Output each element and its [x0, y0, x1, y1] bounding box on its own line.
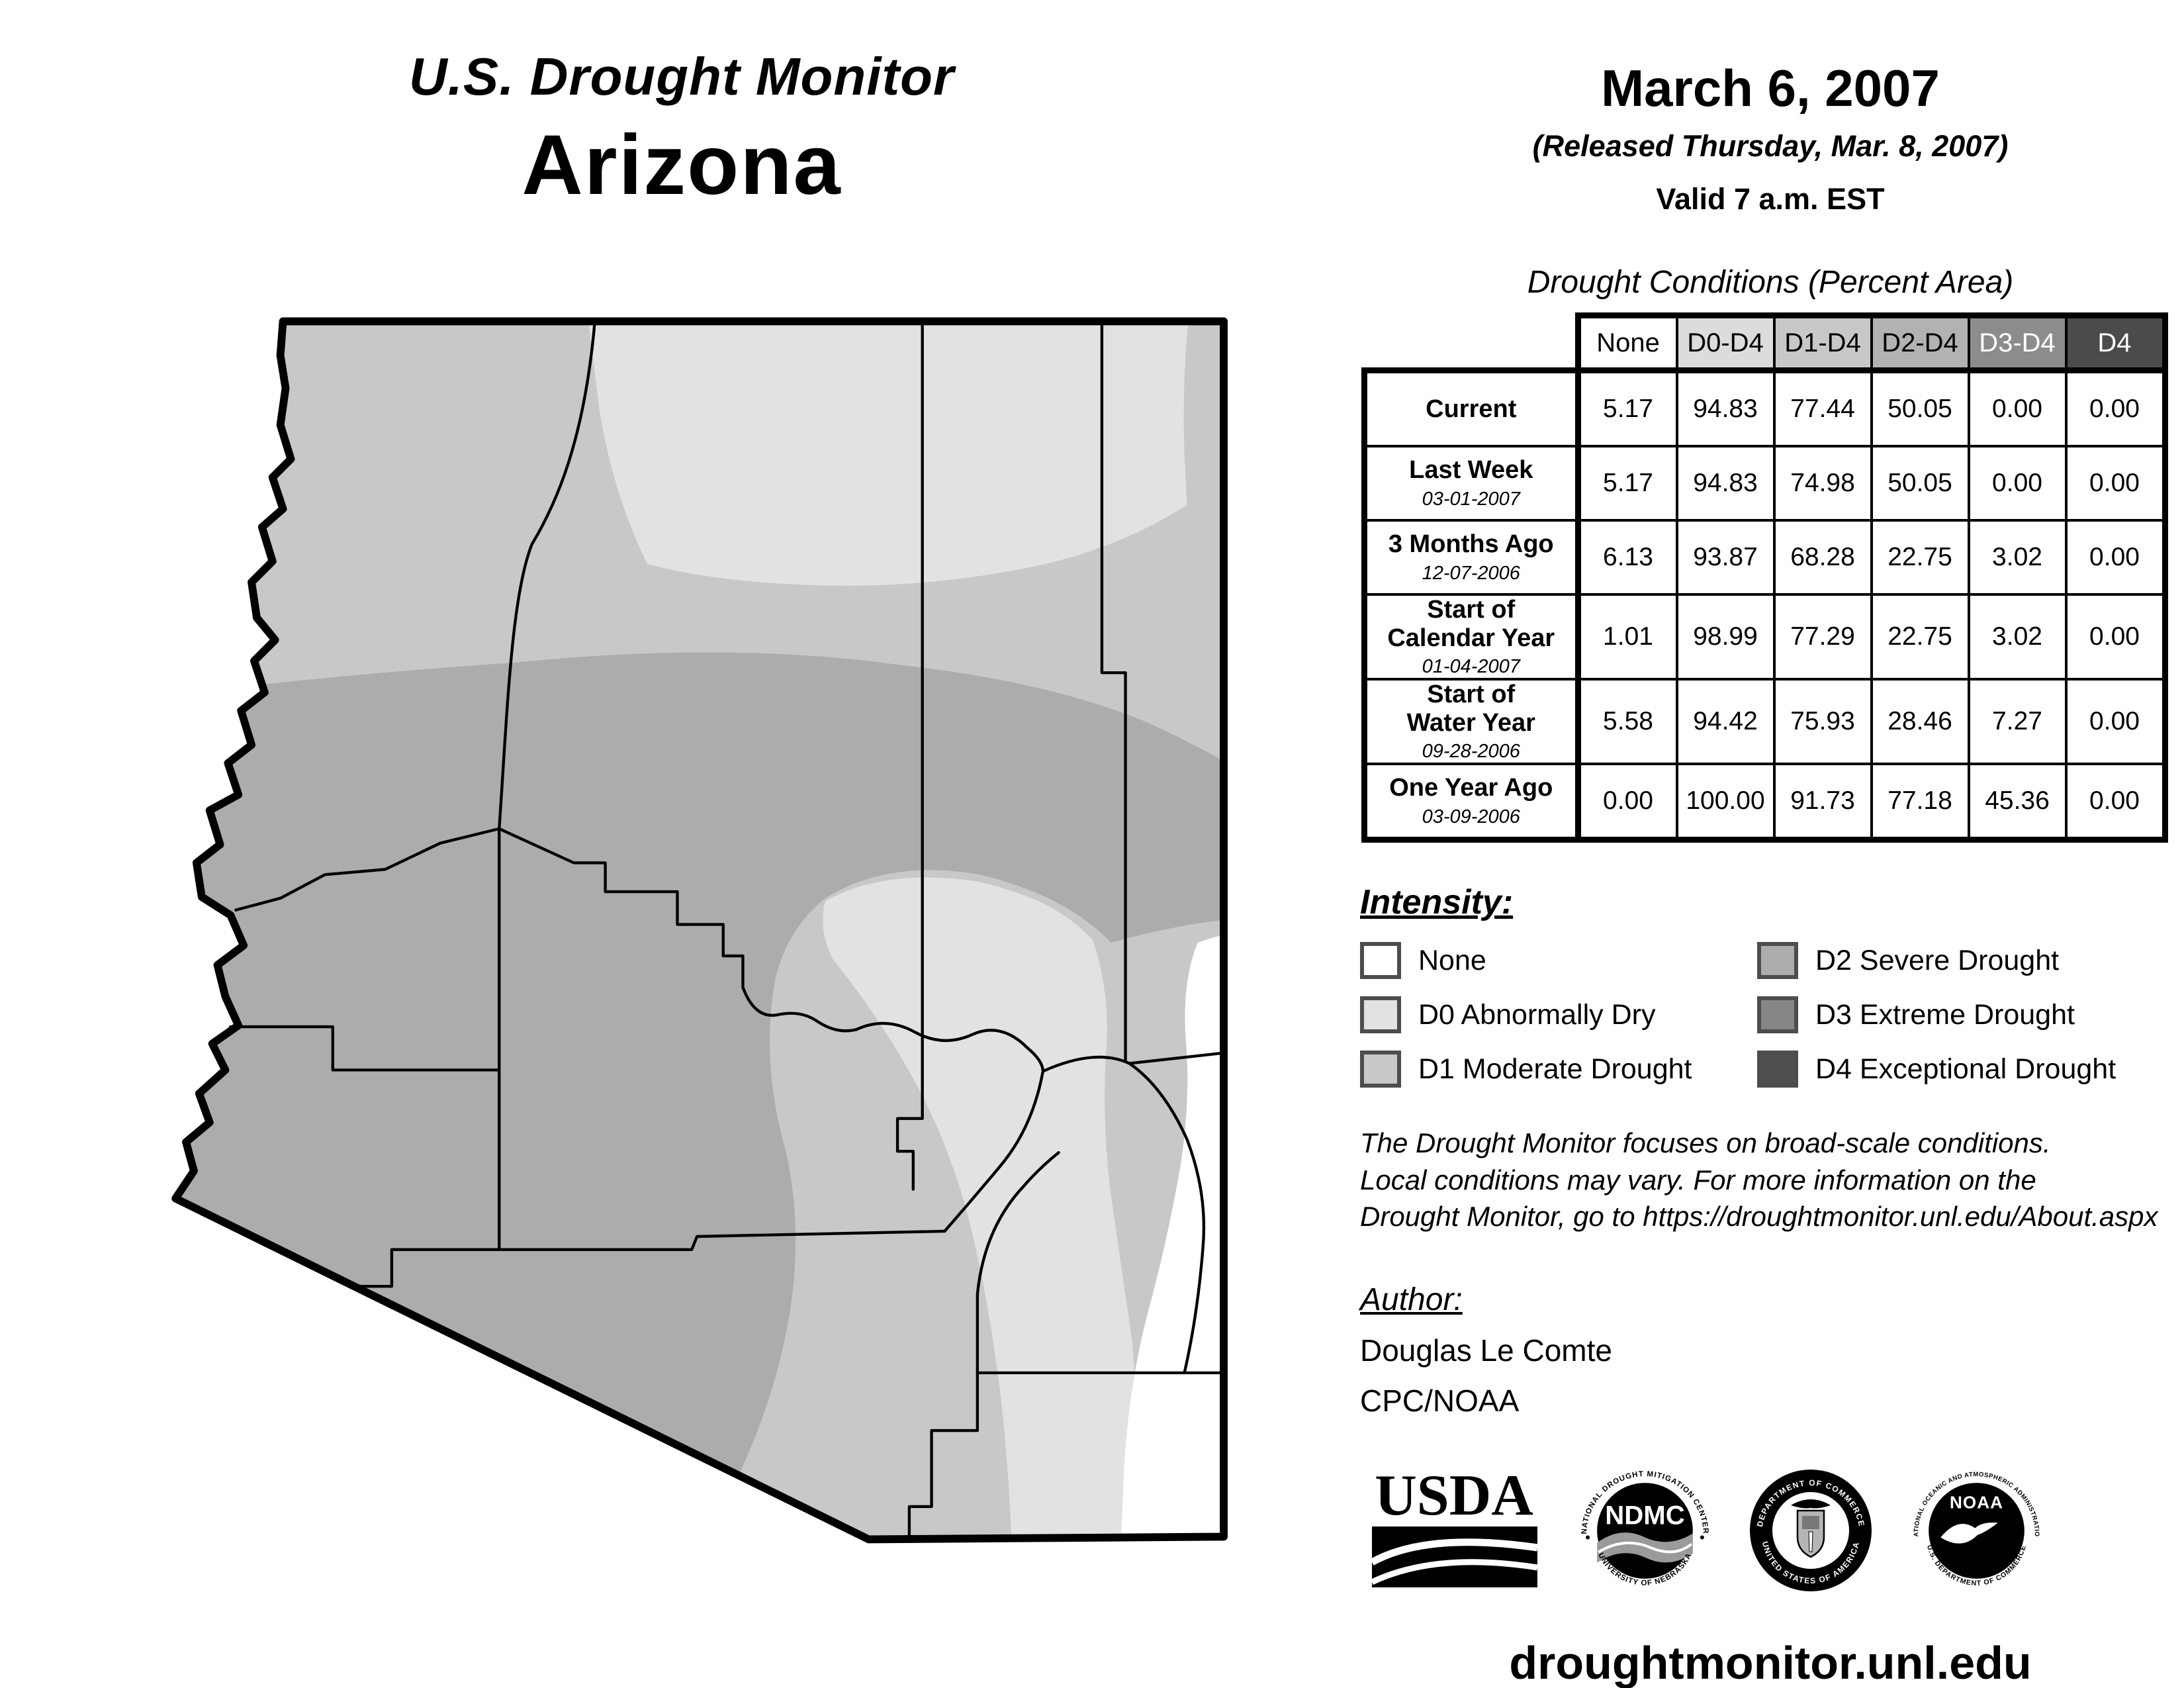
cell-value: 7.27 [1969, 679, 2066, 764]
drought-conditions-table: None D0-D4 D1-D4 D2-D4 D3-D4 D4 Current … [1361, 312, 2168, 843]
row-label: 3 Months Ago 12-07-2006 [1365, 520, 1578, 594]
cell-value: 94.83 [1677, 446, 1774, 520]
col-header-d4: D4 [2066, 316, 2165, 371]
author-name: Douglas Le Comte [1360, 1333, 2181, 1368]
legend-swatch-d3 [1757, 996, 1798, 1033]
disclaimer-line: Local conditions may vary. For more info… [1360, 1162, 2181, 1198]
table-row: Start ofWater Year 09-28-2006 5.58 94.42… [1365, 679, 2165, 764]
cell-value: 98.99 [1677, 594, 1774, 679]
cell-value: 0.00 [2066, 371, 2165, 447]
svg-text:NDMC: NDMC [1605, 1500, 1685, 1530]
cell-value: 5.58 [1578, 679, 1677, 764]
cell-value: 77.18 [1872, 764, 1969, 840]
cell-value: 50.05 [1872, 371, 1969, 447]
cell-value: 0.00 [1969, 446, 2066, 520]
cell-value: 28.46 [1872, 679, 1969, 764]
disclaimer-line: The Drought Monitor focuses on broad-sca… [1360, 1125, 2181, 1161]
cell-value: 3.02 [1969, 594, 2066, 679]
legend-item-d1: D1 Moderate Drought [1360, 1051, 1757, 1088]
website-url: droughtmonitor.unl.edu [1360, 1636, 2181, 1688]
intensity-legend: None D2 Severe Drought D0 Abnormally Dry… [1360, 942, 2181, 1088]
table-row: Current 5.17 94.83 77.44 50.05 0.00 0.00 [1365, 371, 2165, 447]
intensity-heading: Intensity: [1360, 882, 2181, 922]
legend-swatch-d1 [1360, 1051, 1401, 1088]
cell-value: 94.42 [1677, 679, 1774, 764]
cell-value: 22.75 [1872, 594, 1969, 679]
cell-value: 68.28 [1774, 520, 1872, 594]
disclaimer-line: Drought Monitor, go to https://droughtmo… [1360, 1198, 2181, 1235]
legend-item-d3: D3 Extreme Drought [1757, 996, 2181, 1033]
arizona-map-svg [126, 285, 1292, 1635]
commerce-seal: DEPARTMENT OF COMMERCE UNITED STATES OF … [1741, 1461, 1880, 1600]
table-header-row: None D0-D4 D1-D4 D2-D4 D3-D4 D4 [1365, 316, 2165, 371]
page-title: U.S. Drought Monitor [251, 46, 1112, 107]
svg-text:USDA: USDA [1375, 1464, 1533, 1528]
cell-value: 5.17 [1578, 371, 1677, 447]
legend-swatch-d2 [1757, 942, 1798, 979]
legend-item-d2: D2 Severe Drought [1757, 942, 2181, 979]
cell-value: 0.00 [2066, 446, 2165, 520]
col-header-d2d4: D2-D4 [1872, 316, 1969, 371]
valid-time: Valid 7 a.m. EST [1360, 182, 2181, 216]
cell-value: 3.02 [1969, 520, 2066, 594]
row-label: One Year Ago 03-09-2006 [1365, 764, 1578, 840]
right-column: March 6, 2007 (Released Thursday, Mar. 8… [1360, 58, 2181, 1688]
cell-value: 100.00 [1677, 764, 1774, 840]
title-block: U.S. Drought Monitor Arizona [251, 46, 1112, 214]
cell-value: 50.05 [1872, 446, 1969, 520]
col-header-none: None [1578, 316, 1677, 371]
legend-swatch-d0 [1360, 996, 1401, 1033]
cell-value: 77.44 [1774, 371, 1872, 447]
released-date: (Released Thursday, Mar. 8, 2007) [1360, 129, 2181, 164]
cell-value: 0.00 [2066, 764, 2165, 840]
ndmc-logo: NDMC NATIONAL DROUGHT MITIGATION CENTER … [1574, 1460, 1716, 1602]
col-header-d3d4: D3-D4 [1969, 316, 2066, 371]
table-row: Last Week 03-01-2007 5.17 94.83 74.98 50… [1365, 446, 2165, 520]
row-label: Start ofCalendar Year 01-04-2007 [1365, 594, 1578, 679]
usda-logo: USDA [1360, 1463, 1549, 1599]
cell-value: 94.83 [1677, 371, 1774, 447]
drought-shading [126, 285, 1292, 1635]
disclaimer: The Drought Monitor focuses on broad-sca… [1360, 1125, 2181, 1235]
table-row: 3 Months Ago 12-07-2006 6.13 93.87 68.28… [1365, 520, 2165, 594]
report-date: March 6, 2007 [1360, 58, 2181, 118]
row-label: Current [1365, 371, 1578, 447]
drought-monitor-report: U.S. Drought Monitor Arizona [0, 0, 2184, 1688]
cell-value: 6.13 [1578, 520, 1677, 594]
legend-swatch-d4 [1757, 1051, 1798, 1088]
legend-item-d0: D0 Abnormally Dry [1360, 996, 1757, 1033]
cell-value: 0.00 [2066, 520, 2165, 594]
legend-item-d4: D4 Exceptional Drought [1757, 1051, 2181, 1088]
cell-value: 0.00 [2066, 679, 2165, 764]
cell-value: 22.75 [1872, 520, 1969, 594]
noaa-logo: NOAA NATIONAL OCEANIC AND ATMOSPHERIC AD… [1905, 1460, 2048, 1602]
cell-value: 0.00 [2066, 594, 2165, 679]
cell-value: 0.00 [1578, 764, 1677, 840]
region-title: Arizona [251, 117, 1112, 214]
cell-value: 45.36 [1969, 764, 2066, 840]
legend-item-none: None [1360, 942, 1757, 979]
cell-value: 5.17 [1578, 446, 1677, 520]
row-label: Last Week 03-01-2007 [1365, 446, 1578, 520]
cell-value: 74.98 [1774, 446, 1872, 520]
row-label: Start ofWater Year 09-28-2006 [1365, 679, 1578, 764]
legend-swatch-none [1360, 942, 1401, 979]
col-header-d1d4: D1-D4 [1774, 316, 1872, 371]
cell-value: 1.01 [1578, 594, 1677, 679]
cell-value: 77.29 [1774, 594, 1872, 679]
col-header-d0d4: D0-D4 [1677, 316, 1774, 371]
arizona-drought-map [126, 285, 1292, 1635]
table-row: One Year Ago 03-09-2006 0.00 100.00 91.7… [1365, 764, 2165, 840]
cell-value: 75.93 [1774, 679, 1872, 764]
cell-value: 91.73 [1774, 764, 1872, 840]
cell-value: 93.87 [1677, 520, 1774, 594]
cell-value: 0.00 [1969, 371, 2066, 447]
agency-logos: USDA NDMC NATIONAL DROUGHT MITIGATION CE… [1360, 1460, 2181, 1602]
table-corner-cell [1365, 316, 1578, 371]
author-heading: Author: [1360, 1282, 2181, 1318]
table-row: Start ofCalendar Year 01-04-2007 1.01 98… [1365, 594, 2165, 679]
author-org: CPC/NOAA [1360, 1383, 2181, 1419]
svg-text:NOAA: NOAA [1950, 1492, 2003, 1512]
date-block: March 6, 2007 (Released Thursday, Mar. 8… [1360, 58, 2181, 216]
table-title: Drought Conditions (Percent Area) [1360, 264, 2181, 301]
shade-d0-north [587, 308, 1190, 586]
